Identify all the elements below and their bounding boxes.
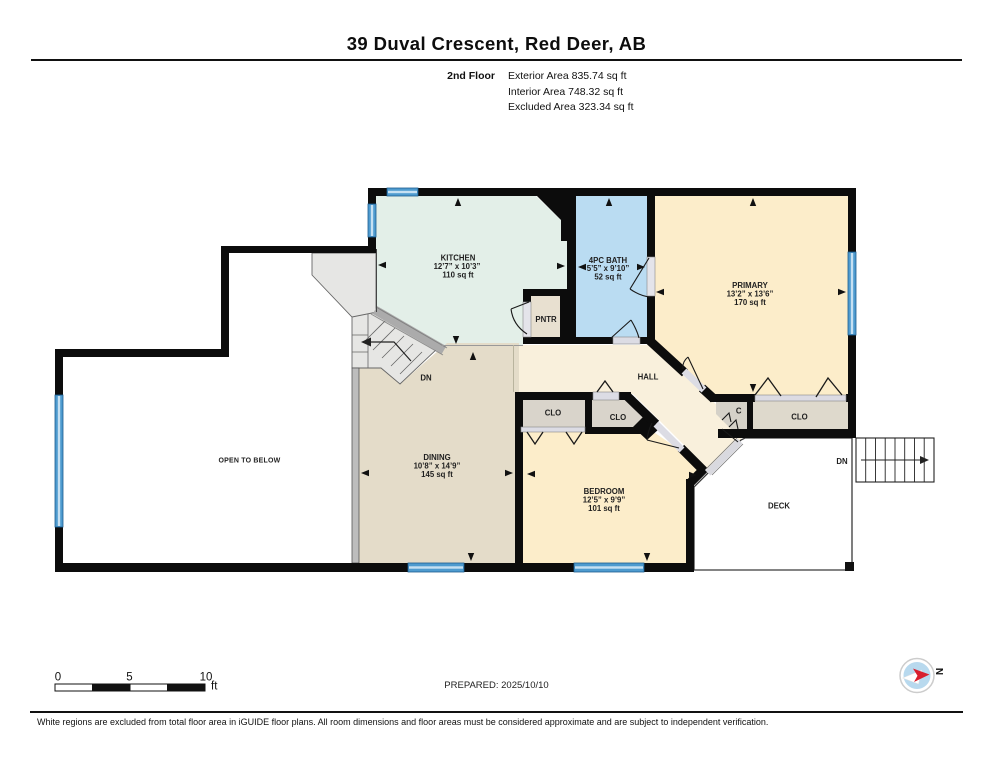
- svg-text:CLO: CLO: [610, 413, 626, 422]
- svg-text:N: N: [933, 668, 944, 675]
- svg-text:C: C: [736, 407, 742, 416]
- svg-text:PNTR: PNTR: [535, 315, 557, 324]
- svg-text:101 sq ft: 101 sq ft: [588, 504, 620, 513]
- svg-text:CLO: CLO: [545, 408, 561, 417]
- svg-text:OPEN TO BELOW: OPEN TO BELOW: [219, 458, 281, 465]
- svg-text:DECK: DECK: [768, 502, 790, 511]
- svg-text:DN: DN: [420, 374, 432, 383]
- svg-text:170 sq ft: 170 sq ft: [734, 298, 766, 307]
- svg-text:145 sq ft: 145 sq ft: [421, 470, 453, 479]
- svg-text:HALL: HALL: [638, 372, 659, 381]
- svg-text:52 sq ft: 52 sq ft: [594, 273, 622, 282]
- svg-text:DN: DN: [836, 457, 848, 466]
- svg-text:CLO: CLO: [791, 413, 807, 422]
- svg-text:110 sq ft: 110 sq ft: [442, 270, 474, 279]
